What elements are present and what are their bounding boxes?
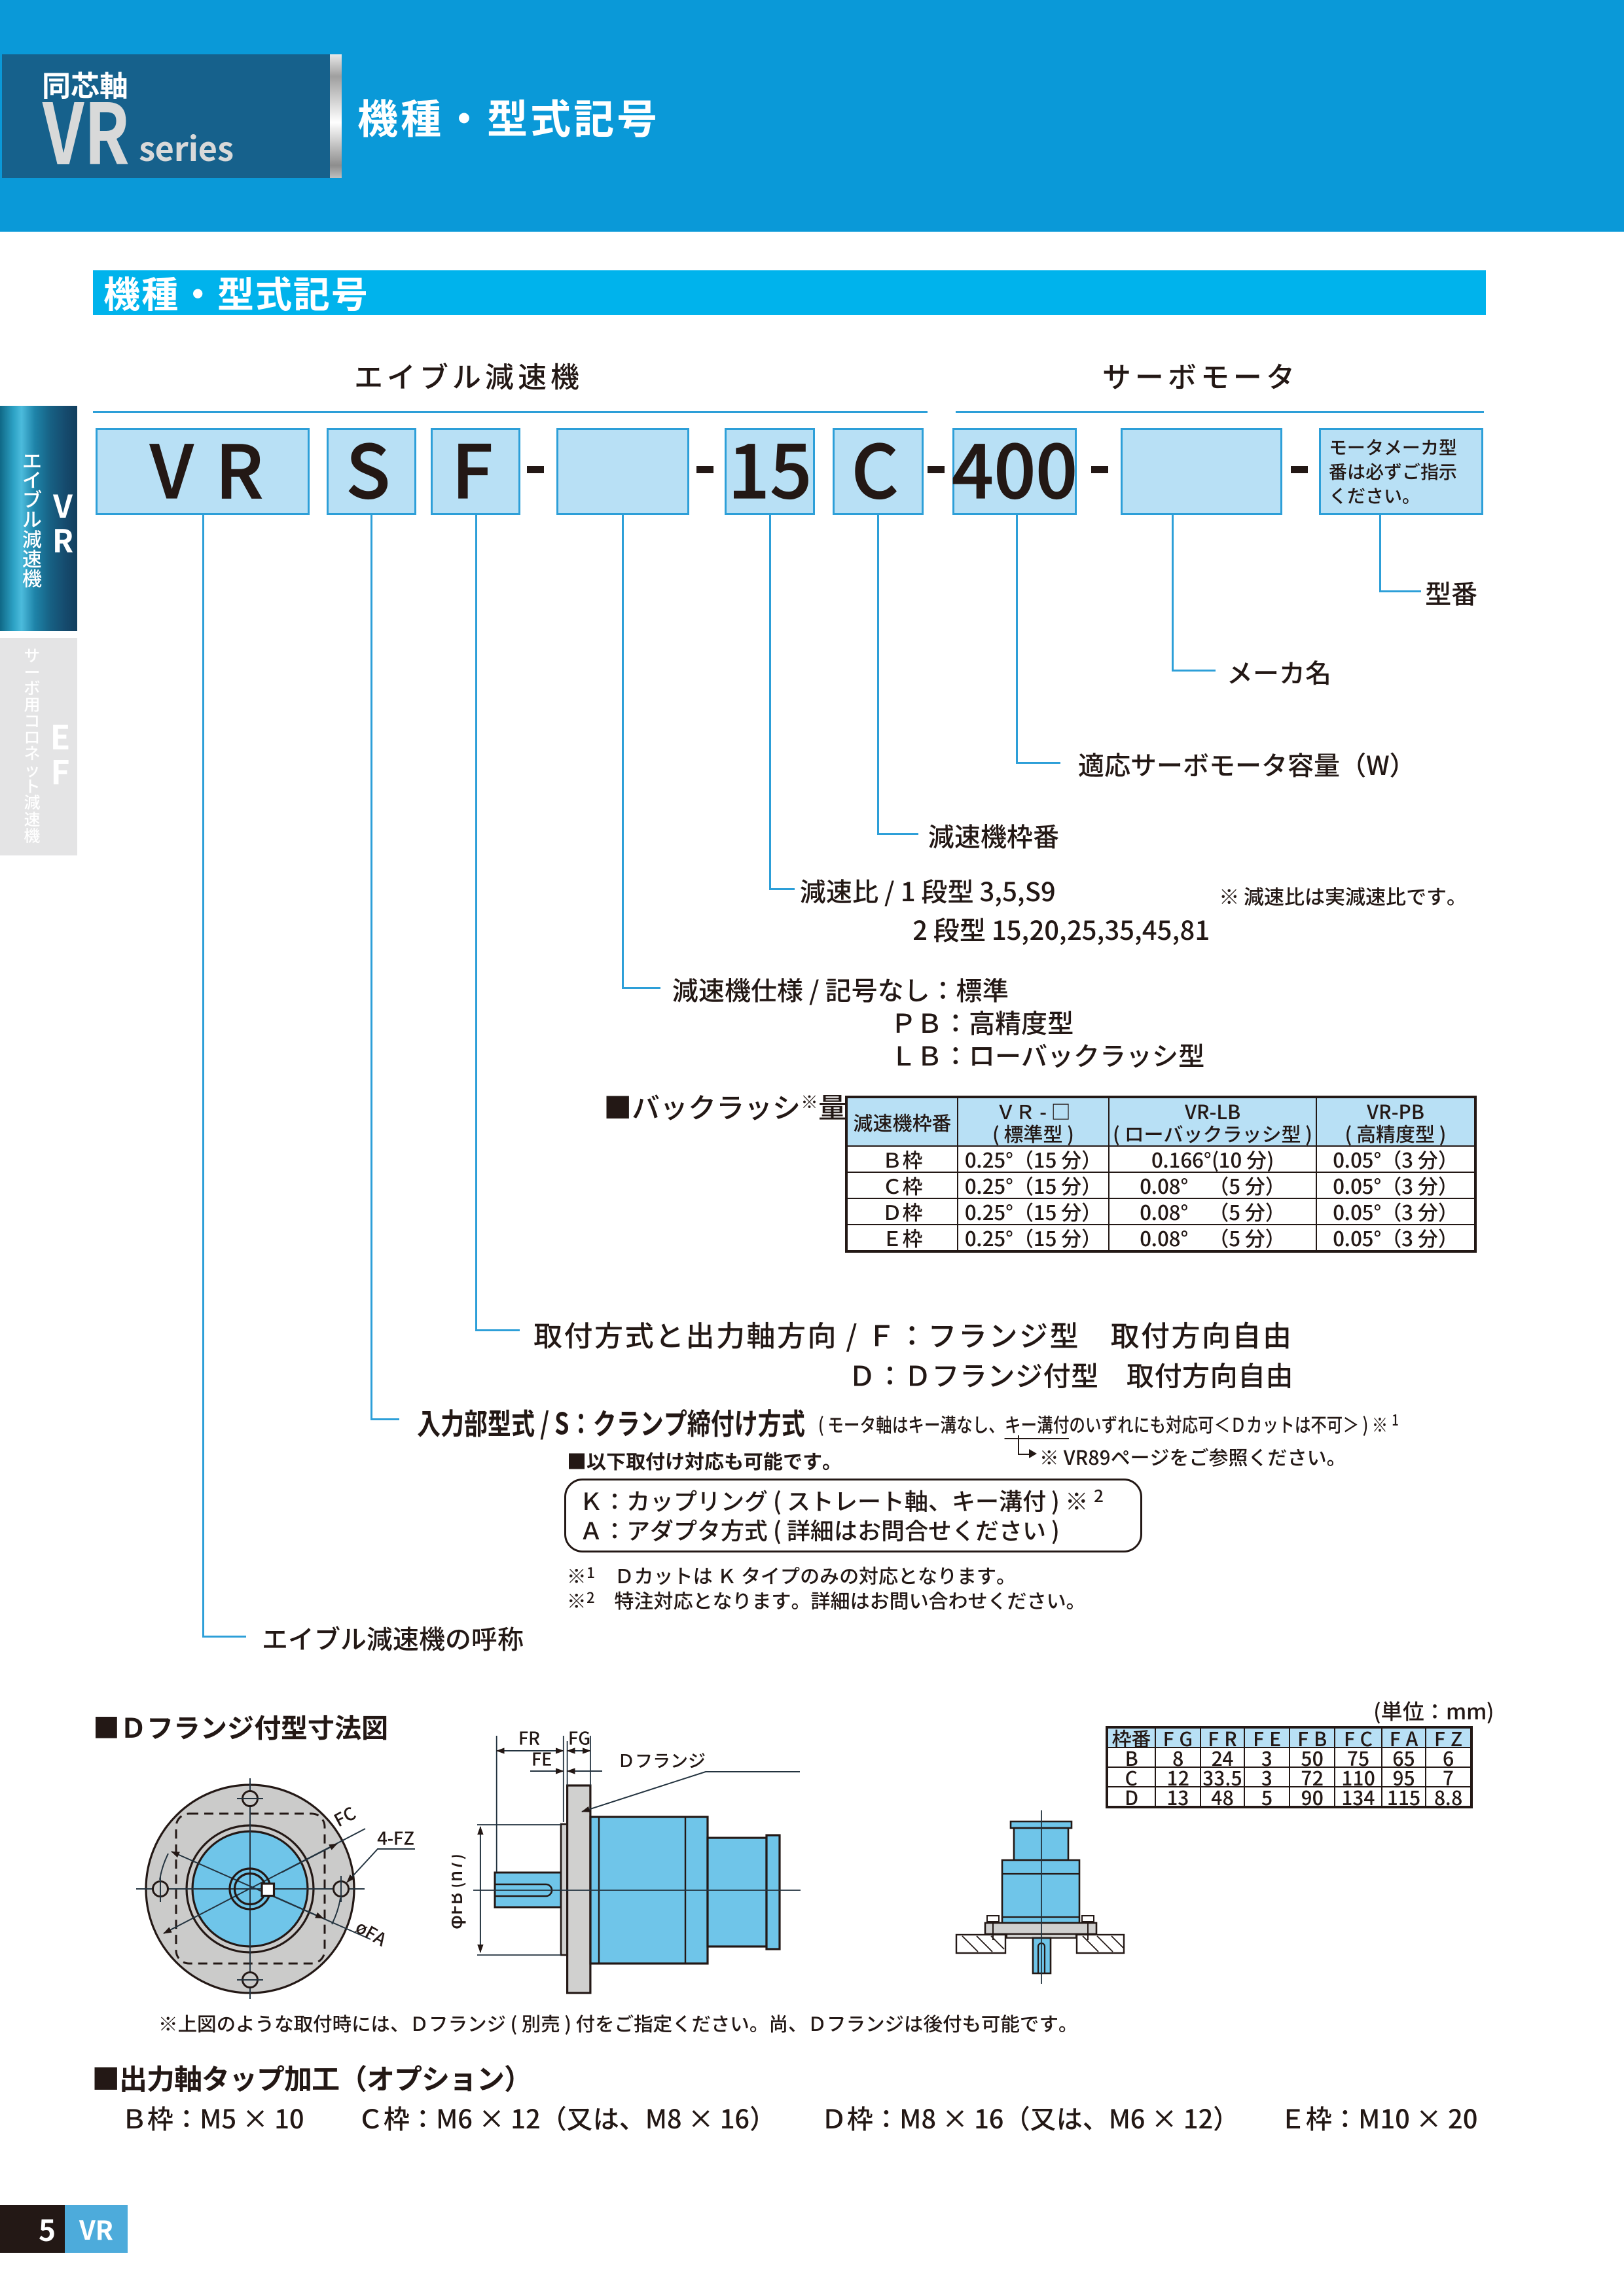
svg-text:Ｄフランジ: Ｄフランジ	[617, 1747, 706, 1772]
svg-text:øFA: øFA	[352, 1913, 392, 1951]
svg-text:FE: FE	[532, 1746, 552, 1771]
svg-text:φFB (h7): φFB (h7)	[452, 1854, 468, 1929]
svg-text:4-FZ: 4-FZ	[377, 1825, 414, 1850]
svg-text:FG: FG	[568, 1728, 590, 1750]
